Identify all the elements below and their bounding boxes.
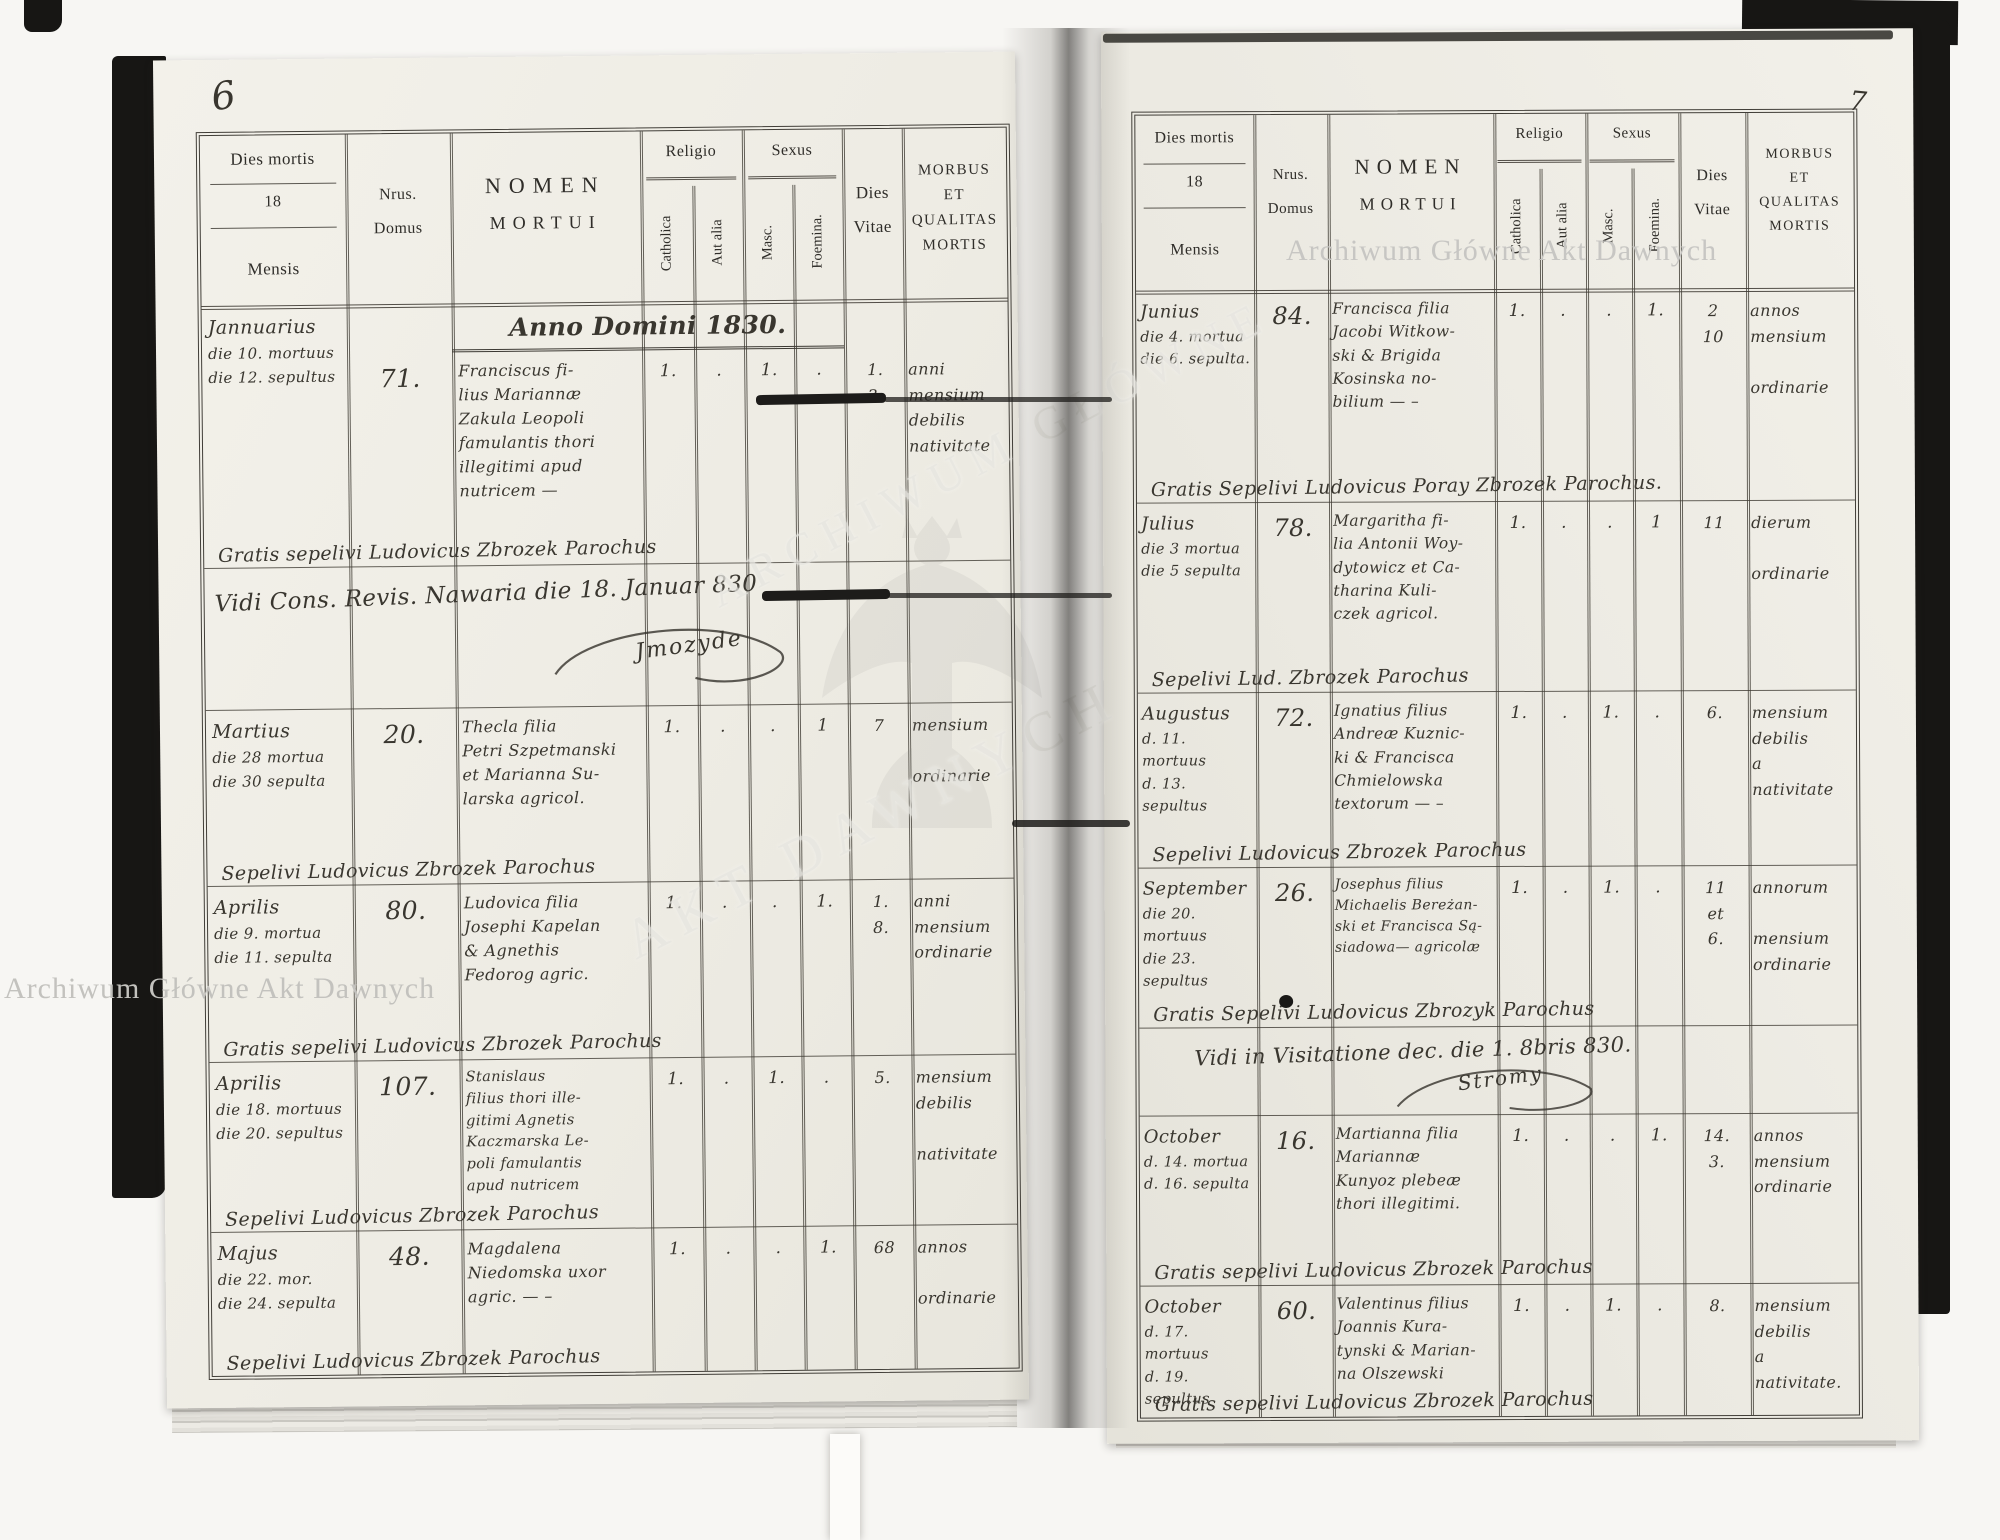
entry-catholica-mark: 1. (646, 717, 698, 738)
col-header-domus: Domus (346, 219, 451, 238)
col-header-nomen: NOMEN (450, 171, 640, 199)
entry-masc-mark: . (1586, 300, 1632, 320)
entry-aut-alia-mark: . (1544, 1126, 1590, 1146)
col-header-morbus: MORBUS ET QUALITAS MORTIS (902, 158, 1007, 259)
entry-house-number: 107. (360, 1071, 456, 1101)
table-gridlines (200, 128, 1006, 136)
col-header-aut-alia: Aut alia (692, 188, 743, 297)
entry-house-number: 48. (361, 1241, 457, 1271)
entry-morbus: annos ordinarie (917, 1234, 1016, 1312)
col-header-domus: Domus (1254, 201, 1328, 218)
entry-row: October d. 14. mortua d. 16. sepulta 16.… (1140, 1112, 1859, 1285)
entry-aut-alia-mark: . (1541, 513, 1587, 533)
entry-dies-vitae: 2 10 (1683, 298, 1743, 349)
entry-masc-mark: 1. (752, 1068, 802, 1089)
right-page: 7 (1101, 28, 1919, 1444)
entry-house-number: 84. (1258, 302, 1326, 330)
entry-name: Thecla filia Petri Szpetmanski et Marian… (462, 713, 643, 811)
entry-masc-mark: . (1587, 512, 1633, 532)
entry-burial-note: Gratis Sepelivi Ludovicus Zbrozyk Paroch… (1153, 994, 1843, 1026)
col-header-vitae: Vitae (1679, 201, 1746, 219)
col-header-morbus: MORBUS ET QUALITAS MORTIS (1745, 142, 1853, 238)
entry-morbus: mensium debilis a nativitate. (1754, 1293, 1854, 1396)
anno-domini-heading: Anno Domini 1830. (452, 301, 844, 352)
col-header-sexus: Sexus (1585, 125, 1678, 142)
col-header-dies: Dies (842, 183, 902, 204)
entry-aut-alia-mark: . (698, 716, 748, 737)
entry-row: Augustus d. 11. mortuus d. 13. sepultus … (1138, 689, 1857, 867)
entry-aut-alia-mark: . (700, 892, 750, 913)
entry-morbus: annos mensium ordinarie (1754, 1123, 1854, 1200)
entry-name: Valentinus filius Joannis Kura- tynski &… (1336, 1292, 1494, 1386)
entry-row: Junius die 4. mortua die 6. sepulta. 84.… (1136, 287, 1855, 502)
col-header-foemina: Foemina. (792, 187, 843, 296)
entry-morbus: anni mensium debilis nativitate (908, 356, 1007, 459)
col-header-nrus: Nrus. (345, 185, 450, 204)
entry-date: Aprilis die 18. mortuus die 20. sepultus (216, 1069, 353, 1146)
col-header-mortui: MORTUI (451, 211, 641, 234)
entry-masc-mark: 1. (1588, 702, 1634, 722)
entry-row: October d. 17. mortuus d. 19. sepultus 6… (1140, 1282, 1859, 1417)
page-number-left: 6 (208, 72, 239, 119)
col-header-year-prefix: 18 (1136, 173, 1254, 192)
entry-catholica-mark: 1. (1496, 703, 1542, 723)
entry-dies-vitae: 68 (857, 1235, 911, 1261)
col-header-year-prefix: 18 (200, 193, 345, 213)
col-header-mensis: Mensis (1136, 241, 1254, 260)
entry-house-number: 78. (1259, 514, 1327, 542)
entry-morbus: anni mensium ordinarie (914, 888, 1013, 966)
entry-house-number: 80. (358, 895, 454, 925)
entry-row: Majus die 22. mor. die 24. sepulta 48. M… (211, 1224, 1018, 1376)
entry-aut-alia-mark: . (1544, 1296, 1590, 1316)
page-edge-shadow (1103, 30, 1893, 42)
entry-masc-mark: . (1590, 1125, 1636, 1145)
entry-name: Francisca filia Jacobi Witkow- ski & Bri… (1332, 297, 1491, 414)
ink-blot (1279, 995, 1293, 1008)
entry-aut-alia-mark: . (1540, 301, 1586, 321)
entry-catholica-mark: 1. (650, 1069, 702, 1090)
table-header: Dies mortis 18 Mensis Nrus. Domus NOMEN … (200, 128, 1006, 136)
entry-name: Magdalena Niedomska uxor agric. — – (467, 1235, 648, 1309)
col-header-dies-mortis: Dies mortis (200, 149, 345, 171)
entry-catholica-mark: 1. (1498, 1126, 1544, 1146)
binding-thread (888, 593, 1112, 598)
entry-catholica-mark: 1. (1498, 1296, 1544, 1316)
entry-date: Aprilis die 9. mortua die 11. sepulta (214, 893, 351, 970)
entry-foemina-mark: . (1634, 702, 1681, 722)
left-page: 6 (153, 52, 1029, 1409)
entry-name: Margaritha fi- lia Antonii Woy- dytowicz… (1333, 509, 1492, 626)
entry-date: Julius die 3 mortua die 5 sepulta (1141, 510, 1253, 583)
entry-dies-vitae: 7 (852, 713, 906, 739)
entry-name: Stanislaus filius thori ille- gitimi Agn… (466, 1065, 647, 1197)
col-header-mortui: MORTUI (1328, 194, 1494, 215)
entry-house-number: 60. (1262, 1297, 1330, 1325)
col-header-catholica: Catholica (1494, 172, 1540, 280)
entry-burial-note: Gratis sepelivi Ludovicus Zbrozek Paroch… (1154, 1252, 1844, 1284)
entry-name: Ludovica filia Josephi Kapelan & Agnethi… (464, 889, 645, 987)
col-header-foemina: Foemina. (1632, 171, 1679, 279)
visitation-note: Vidi Cons. Revis. Nawaria die 18. Januar… (200, 128, 1006, 136)
entry-foemina-mark: 1. (1632, 300, 1679, 320)
entry-dies-vitae: 11 (1684, 510, 1744, 536)
entry-dies-vitae: 11 et 6. (1686, 875, 1746, 952)
entry-burial-note: Sepelivi Ludovicus Zbrozek Parochus (226, 1337, 1004, 1375)
entry-morbus: annorum mensium ordinarie (1753, 875, 1853, 978)
entry-masc-mark: . (753, 1238, 803, 1259)
entry-burial-note: Sepelivi Lud. Zbrozek Parochus (1152, 659, 1842, 691)
entry-aut-alia-mark: . (1542, 703, 1588, 723)
entry-house-number: 16. (1262, 1127, 1330, 1155)
entry-date: October d. 14. mortua d. 16. sepulta (1144, 1123, 1256, 1196)
entry-morbus: annos mensium ordinarie (1750, 298, 1850, 401)
entry-date: Junius die 4. mortua die 6. sepulta. (1140, 298, 1252, 371)
entry-masc-mark: 1. (1589, 877, 1635, 897)
col-header-sexus: Sexus (742, 141, 842, 160)
entry-morbus: mensium ordinarie (912, 712, 1011, 790)
col-header-catholica: Catholica (640, 189, 693, 298)
binding-thread (884, 397, 1112, 402)
col-header-dies: Dies (1679, 167, 1746, 185)
entry-row: Martius die 28 mortua die 30 sepulta 20.… (206, 702, 1014, 886)
entry-catholica-mark: 1. (642, 361, 694, 382)
entry-catholica-mark: 1. (648, 893, 700, 914)
entry-catholica-mark: 1. (1494, 301, 1540, 321)
entry-morbus: mensium debilis nativitate (916, 1064, 1015, 1167)
entry-foemina-mark: 1 (798, 715, 848, 736)
entry-aut-alia-mark: . (703, 1238, 753, 1259)
entry-masc-mark: 1. (744, 360, 794, 381)
entry-foemina-mark: . (1636, 1295, 1683, 1315)
col-header-dies-mortis: Dies mortis (1135, 129, 1253, 148)
entry-date: Jannuarius die 10. mortuus die 12. sepul… (208, 313, 345, 390)
entry-dies-vitae: 8. (1687, 1293, 1747, 1319)
entry-burial-note: Gratis sepelivi Ludovicus Zbrozek Paroch… (1155, 1384, 1845, 1416)
entry-aut-alia-mark: . (694, 360, 744, 381)
entry-aut-alia-mark: . (1543, 878, 1589, 898)
entry-row: Aprilis die 18. mortuus die 20. sepultus… (209, 1054, 1017, 1232)
entry-name: Franciscus fi- lius Mariannæ Zakula Leop… (458, 357, 639, 503)
entry-foemina-mark: . (1635, 877, 1682, 897)
entry-dies-vitae: 1. 8. (854, 889, 909, 941)
col-header-mensis: Mensis (201, 259, 346, 281)
entry-masc-mark: 1. (1590, 1295, 1636, 1315)
visitation-text: Vidi Cons. Revis. Nawaria die 18. Januar… (214, 571, 758, 618)
book-cover-fragment (24, 0, 62, 32)
entry-name: Ignatius filius Andreæ Kuznic- ki & Fran… (1334, 699, 1493, 816)
register-table-left: Dies mortis 18 Mensis Nrus. Domus NOMEN … (196, 124, 1023, 1380)
entry-date: Martius die 28 mortua die 30 sepulta (212, 717, 349, 794)
entry-house-number: 26. (1261, 879, 1329, 907)
entry-row: Aprilis die 9. mortua die 11. sepulta 80… (208, 878, 1016, 1062)
entry-foemina-mark: 1. (1636, 1125, 1683, 1145)
entry-masc-mark: . (748, 716, 798, 737)
entry-foemina-mark: . (802, 1067, 852, 1088)
entry-aut-alia-mark: . (702, 1068, 752, 1089)
entry-dies-vitae: 6. (1685, 700, 1745, 726)
table-gridlines (1135, 112, 1853, 115)
entry-burial-note: Sepelivi Ludovicus Zbrozek Parochus (1152, 834, 1842, 866)
entry-house-number: 72. (1260, 704, 1328, 732)
col-header-nrus: Nrus. (1254, 167, 1328, 184)
entry-date: September die 20. mortuus die 23. sepult… (1143, 875, 1256, 993)
entry-row: Julius die 3 mortua die 5 sepulta 78. Ma… (1137, 499, 1856, 692)
col-header-nomen: NOMEN (1327, 154, 1493, 180)
scanned-register-spread: 6 (0, 0, 2000, 1540)
entry-catholica-mark: 1. (1495, 513, 1541, 533)
col-header-masc: Masc. (1586, 171, 1632, 279)
entry-foemina-mark: 1 (1633, 512, 1680, 532)
register-table-right: Dies mortis 18 Mensis Nrus. Domus NOMEN … (1131, 108, 1863, 1421)
entry-masc-mark: . (750, 892, 800, 913)
entry-dies-vitae: 5. (856, 1065, 910, 1091)
bookmark-ribbon (830, 1434, 860, 1540)
col-header-vitae: Vitae (843, 217, 903, 238)
entry-date: Augustus d. 11. mortuus d. 13. sepultus (1142, 700, 1255, 818)
entry-row: September die 20. mortuus die 23. sepult… (1139, 864, 1858, 1027)
entry-foemina-mark: . (794, 359, 844, 380)
entry-foemina-mark: 1. (803, 1237, 853, 1258)
col-header-religio: Religio (640, 142, 742, 161)
entry-catholica-mark: 1. (1497, 878, 1543, 898)
entry-house-number: 71. (352, 363, 448, 393)
entry-morbus: mensium debilis a nativitate (1752, 700, 1852, 803)
entry-burial-note: Gratis Sepelivi Ludovicus Poray Zbrozek … (1151, 469, 1841, 501)
entry-morbus: dierum ordinarie (1751, 510, 1851, 587)
entry-catholica-mark: 1. (651, 1239, 703, 1260)
entry-date: Majus die 22. mor. die 24. sepulta (217, 1239, 354, 1316)
binding-stitch (1012, 820, 1130, 827)
col-header-masc: Masc. (742, 188, 793, 297)
col-header-religio: Religio (1493, 126, 1585, 143)
entry-house-number: 20. (356, 719, 452, 749)
entry-name: Martianna filia Mariannæ Kunyoz plebeæ t… (1336, 1122, 1494, 1216)
entry-dies-vitae: 14. 3. (1687, 1123, 1747, 1174)
entry-foemina-mark: 1. (800, 891, 850, 912)
entry-name: Josephus filius Michaelis Bereżan- ski e… (1335, 874, 1493, 959)
col-header-aut-alia: Aut alia (1540, 172, 1586, 280)
